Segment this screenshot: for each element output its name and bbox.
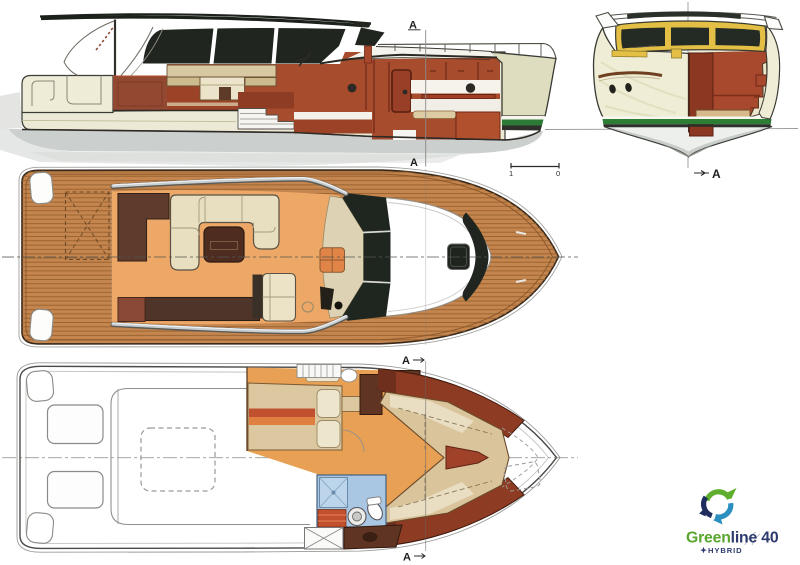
svg-text:A: A xyxy=(403,552,411,564)
svg-text:Greenline 40: Greenline 40 xyxy=(686,530,779,547)
svg-text:A: A xyxy=(712,167,721,181)
svg-text:A: A xyxy=(402,355,410,367)
svg-text:A: A xyxy=(410,157,418,169)
svg-text:1: 1 xyxy=(509,169,513,178)
svg-text:HYBRID: HYBRID xyxy=(708,546,743,555)
svg-text:0: 0 xyxy=(556,169,560,178)
